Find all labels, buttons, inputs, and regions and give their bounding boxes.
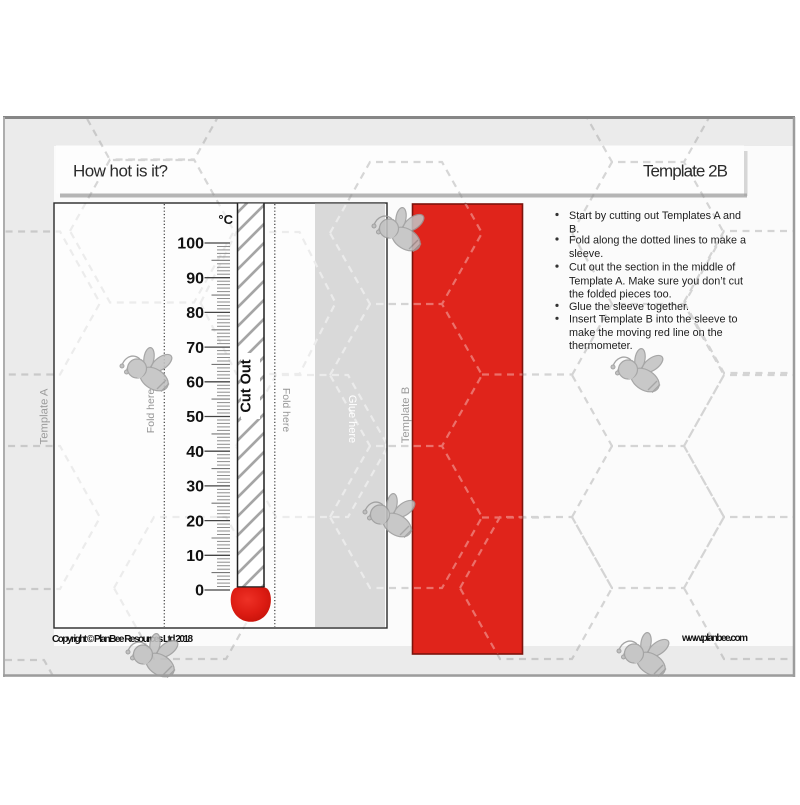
svg-text:30: 30 <box>186 479 204 496</box>
svg-text:Fold along the dotted lines to: Fold along the dotted lines to make a <box>569 234 746 246</box>
svg-text:sleeve.: sleeve. <box>569 248 603 260</box>
svg-text:40: 40 <box>186 444 204 461</box>
svg-text:Template A: Template A <box>39 388 51 444</box>
svg-text:10: 10 <box>186 548 204 565</box>
svg-text:Cut Out: Cut Out <box>239 359 255 412</box>
svg-text:Start by cutting out Templates: Start by cutting out Templates A and <box>569 210 741 222</box>
svg-text:How hot is it?: How hot is it? <box>73 162 168 181</box>
svg-text:100: 100 <box>177 236 204 253</box>
svg-text:0: 0 <box>195 583 204 600</box>
svg-text:Insert Template B into the sle: Insert Template B into the sleeve to <box>569 314 737 326</box>
svg-text:Fold here: Fold here <box>280 388 292 433</box>
svg-text:Template B: Template B <box>400 387 412 444</box>
svg-text:the folded pieces too.: the folded pieces too. <box>569 288 672 300</box>
svg-text:Cut out the section in the mid: Cut out the section in the middle of <box>569 262 736 274</box>
svg-text:80: 80 <box>186 305 204 322</box>
svg-text:70: 70 <box>186 340 204 357</box>
svg-text:Glue the sleeve together.: Glue the sleeve together. <box>569 301 689 313</box>
svg-text:50: 50 <box>186 409 204 426</box>
svg-text:www.planbee.com: www.planbee.com <box>681 633 748 644</box>
svg-text:thermometer.: thermometer. <box>569 340 633 352</box>
svg-text:90: 90 <box>186 270 204 287</box>
svg-text:Fold here: Fold here <box>145 389 157 434</box>
svg-text:20: 20 <box>186 513 204 530</box>
svg-text:Glue here: Glue here <box>346 395 358 443</box>
svg-text:Template A. Make sure you don’: Template A. Make sure you don’t cut <box>569 276 743 288</box>
svg-text:°C: °C <box>218 212 233 227</box>
svg-text:Template 2B: Template 2B <box>643 162 728 181</box>
svg-text:make the moving red line on th: make the moving red line on the <box>569 327 723 339</box>
svg-text:60: 60 <box>186 375 204 392</box>
